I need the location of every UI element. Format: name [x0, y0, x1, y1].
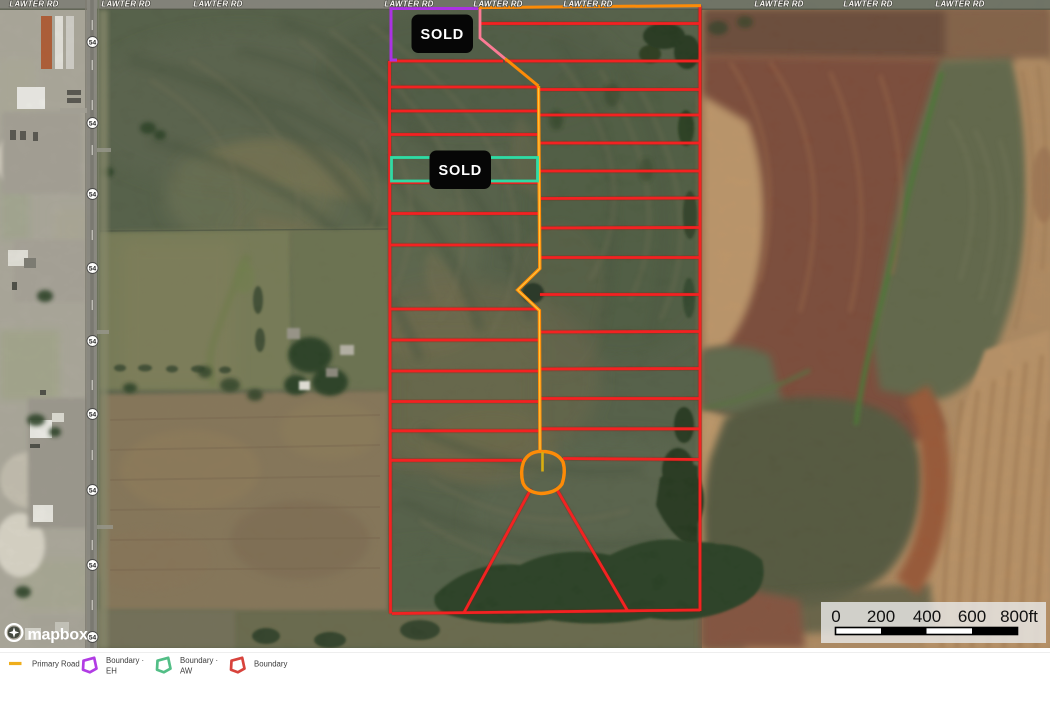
svg-text:54: 54	[89, 487, 97, 494]
svg-text:54: 54	[89, 634, 97, 641]
svg-text:LAWTER RD: LAWTER RD	[193, 0, 242, 9]
svg-text:LAWTER RD: LAWTER RD	[843, 0, 892, 9]
svg-text:0: 0	[831, 607, 840, 626]
svg-text:SOLD: SOLD	[421, 27, 464, 43]
svg-text:800ft: 800ft	[1000, 607, 1038, 626]
svg-text:200: 200	[867, 607, 895, 626]
svg-text:mapbox: mapbox	[28, 627, 88, 644]
svg-text:54: 54	[89, 39, 97, 46]
svg-text:54: 54	[89, 265, 97, 272]
svg-text:54: 54	[89, 562, 97, 569]
svg-text:Boundary ·: Boundary ·	[180, 656, 218, 665]
svg-text:SOLD: SOLD	[439, 163, 482, 179]
svg-text:54: 54	[89, 338, 97, 345]
svg-text:LAWTER RD: LAWTER RD	[563, 0, 612, 9]
svg-text:54: 54	[89, 411, 97, 418]
svg-text:Boundary ·: Boundary ·	[106, 656, 144, 665]
svg-text:LAWTER RD: LAWTER RD	[473, 0, 522, 9]
svg-text:600: 600	[958, 607, 986, 626]
svg-text:54: 54	[89, 191, 97, 198]
svg-text:EH: EH	[106, 667, 117, 676]
svg-text:LAWTER RD: LAWTER RD	[935, 0, 984, 9]
svg-text:LAWTER RD: LAWTER RD	[9, 0, 58, 9]
svg-text:54: 54	[89, 120, 97, 127]
svg-text:400: 400	[913, 607, 941, 626]
svg-text:LAWTER RD: LAWTER RD	[384, 0, 433, 9]
svg-text:AW: AW	[180, 667, 193, 676]
svg-text:LAWTER RD: LAWTER RD	[754, 0, 803, 9]
svg-text:Primary Road: Primary Road	[32, 659, 80, 668]
svg-text:LAWTER RD: LAWTER RD	[101, 0, 150, 9]
svg-text:Boundary: Boundary	[254, 659, 287, 668]
